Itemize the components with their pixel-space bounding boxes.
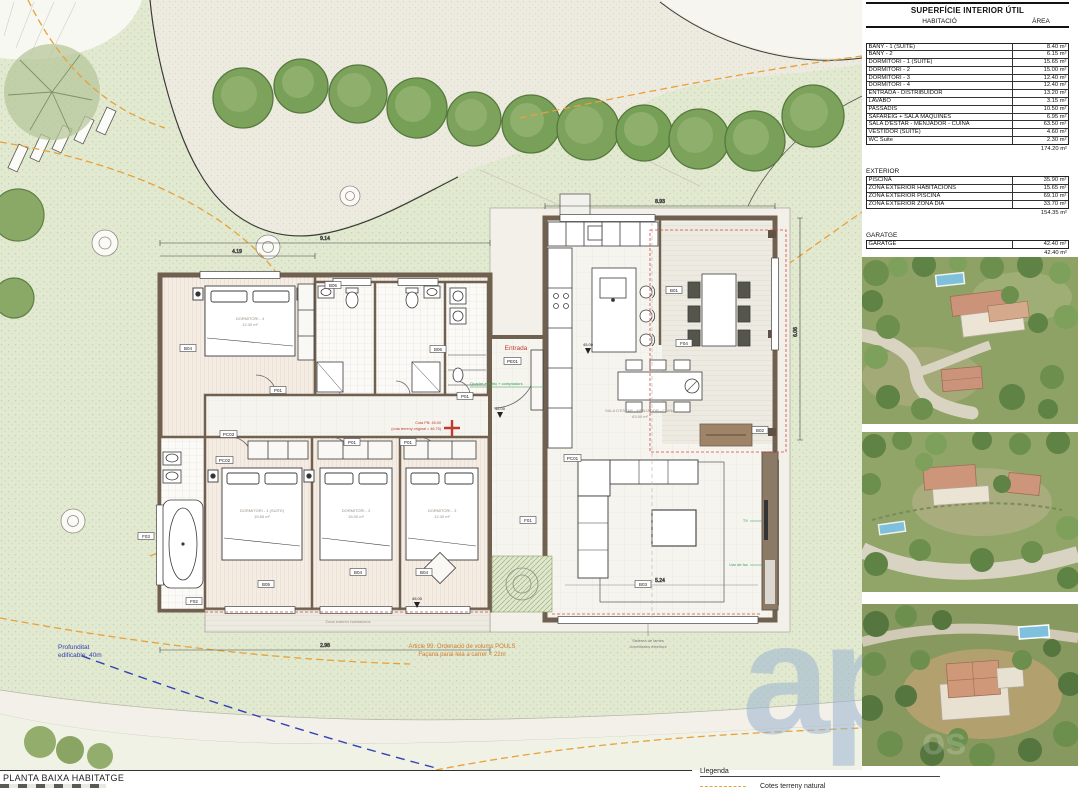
svg-text:corredisses exteriors: corredisses exteriors — [630, 644, 667, 649]
table-row: BANY - 1 (SUITE)8.40 m² — [867, 44, 1068, 52]
coffee-table — [652, 510, 696, 546]
table-row: PISCINA35.90 m² — [867, 177, 1068, 185]
table-row: WC Suite2.30 m² — [867, 137, 1068, 144]
svg-text:edificable, 40m: edificable, 40m — [58, 652, 102, 659]
table-row: ENTRADA - DISTRIBUÏDOR13.20 m² — [867, 90, 1068, 98]
svg-text:Article 99. Ordenació de volum: Article 99. Ordenació de volums POULS — [408, 644, 515, 650]
aerial-render-2 — [862, 432, 1078, 592]
skylight — [560, 194, 590, 216]
table-row: VESTIDOR (SUITE)4.60 m² — [867, 129, 1068, 137]
svg-text:63.50 m²: 63.50 m² — [632, 414, 648, 419]
svg-text:PC01: PC01 — [567, 456, 579, 461]
depth-note: Profunditat — [58, 644, 90, 651]
column-header-room: HABITACIÓ — [866, 18, 1013, 25]
section-title: GARATGE — [866, 232, 1069, 239]
svg-text:PE01: PE01 — [507, 359, 519, 364]
svg-text:Quadre elèctric + comptadors: Quadre elèctric + comptadors — [470, 381, 523, 386]
svg-text:B03: B03 — [639, 582, 648, 587]
svg-text:DORMITORI - 2: DORMITORI - 2 — [342, 508, 371, 513]
garage-building — [1007, 472, 1041, 495]
table-row: ZONA EXTERIOR PISCINA69.10 m² — [867, 193, 1068, 201]
entrance-label: Entrada — [505, 345, 528, 352]
title-block-divider — [0, 770, 692, 771]
svg-text:45.00: 45.00 — [583, 342, 594, 347]
area-table-interior: SUPERFÍCIE INTERIOR ÚTIL HABITACIÓ ÀREA … — [866, 2, 1069, 152]
svg-text:B01: B01 — [670, 288, 679, 293]
interior-rows: BANY - 1 (SUITE)8.40 m²BANY - 26.15 m²DO… — [866, 43, 1069, 145]
scale-bar — [0, 784, 106, 788]
table-row: LAVABO3.15 m² — [867, 98, 1068, 106]
legend-item: Cotes terreny natural — [700, 783, 1000, 790]
svg-text:(cota terreny original = 46.75: (cota terreny original = 46.75) — [391, 427, 441, 431]
tv — [764, 500, 768, 540]
dining-table — [618, 360, 702, 412]
svg-text:Zona exterior habitacions: Zona exterior habitacions — [326, 619, 371, 624]
svg-text:SALA D'ESTAR - MENJADOR - CUIN: SALA D'ESTAR - MENJADOR - CUINA — [605, 408, 675, 413]
svg-text:B04: B04 — [354, 570, 363, 575]
divider — [866, 26, 1069, 28]
table-row: DORMITORI - 312.40 m² — [867, 75, 1068, 83]
site-plan: Profunditat edificable, 40m — [0, 0, 862, 770]
svg-text:P01: P01 — [348, 440, 357, 445]
svg-text:B06: B06 — [329, 283, 338, 288]
svg-text:4.19: 4.19 — [232, 249, 242, 255]
svg-text:5.24: 5.24 — [655, 578, 665, 584]
svg-text:PC02: PC02 — [219, 458, 231, 463]
svg-text:45.00: 45.00 — [412, 596, 423, 601]
svg-text:B06: B06 — [434, 347, 443, 352]
svg-text:F02: F02 — [190, 599, 198, 604]
divider — [866, 2, 1069, 4]
svg-text:F01: F01 — [524, 518, 532, 523]
svg-text:P01: P01 — [461, 394, 470, 399]
svg-text:B02: B02 — [756, 428, 765, 433]
pool — [936, 273, 965, 287]
table-row: SAFAREIG + SALA MÀQUINES6.95 m² — [867, 114, 1068, 122]
aerial-render-3: os — [862, 604, 1078, 766]
garage-total: 42.40 m² — [866, 250, 1069, 256]
svg-text:TV: TV — [743, 518, 748, 523]
svg-text:9.14: 9.14 — [320, 236, 330, 242]
table-row: DORMITORI - 1 (SUITE)15.65 m² — [867, 59, 1068, 67]
svg-text:DORMITORI - 3: DORMITORI - 3 — [428, 508, 457, 513]
svg-text:8.93: 8.93 — [655, 199, 665, 205]
svg-text:F03: F03 — [142, 534, 150, 539]
table-row: BANY - 26.15 m² — [867, 51, 1068, 59]
svg-text:45.00: 45.00 — [495, 406, 506, 411]
exterior-rows: PISCINA35.90 m²ZONA EXTERIOR HABITACIONS… — [866, 176, 1069, 208]
svg-text:Llar de foc: Llar de foc — [729, 562, 748, 567]
house-plan — [157, 215, 787, 633]
svg-text:DORMITORI - 1 (SUITE): DORMITORI - 1 (SUITE) — [240, 508, 285, 513]
garage-building — [941, 366, 983, 391]
svg-text:12.40 m²: 12.40 m² — [434, 514, 450, 519]
drawing-sheet: Profunditat edificable, 40m — [0, 0, 1080, 793]
svg-text:Sistema de lames: Sistema de lames — [632, 638, 664, 643]
svg-text:P01: P01 — [404, 440, 413, 445]
pool — [1019, 625, 1050, 639]
svg-text:15.65 m²: 15.65 m² — [254, 514, 270, 519]
table-row: DORMITORI - 215.00 m² — [867, 67, 1068, 75]
watermark-fragment: os — [922, 721, 966, 763]
divider — [700, 776, 940, 777]
svg-text:15.00 m²: 15.00 m² — [348, 514, 364, 519]
legend-item-label: Cotes terreny natural — [760, 783, 825, 790]
area-table-garage: GARATGE GARATGE42.40 m² 42.40 m² — [866, 232, 1069, 256]
interior-total: 174.20 m² — [866, 146, 1069, 152]
legend-title: Llegenda — [700, 768, 1000, 775]
table-row: GARATGE42.40 m² — [867, 241, 1068, 248]
garage-rows: GARATGE42.40 m² — [866, 240, 1069, 249]
svg-text:B04: B04 — [184, 346, 193, 351]
area-tables: SUPERFÍCIE INTERIOR ÚTIL HABITACIÓ ÀREA … — [866, 0, 1069, 256]
aerial-render-1 — [862, 257, 1078, 424]
table-row: ZONA EXTERIOR ZONA DIA33.70 m² — [867, 201, 1068, 208]
area-table-exterior: EXTERIOR PISCINA35.90 m²ZONA EXTERIOR HA… — [866, 168, 1069, 216]
svg-text:Cota PB: 45.00: Cota PB: 45.00 — [415, 421, 441, 425]
column-header-area: ÀREA — [1013, 18, 1069, 25]
contour-line-swatch — [700, 786, 746, 787]
table-row: SALA D'ESTAR - MENJADOR - CUINA63.50 m² — [867, 121, 1068, 129]
exterior-total: 154.35 m² — [866, 210, 1069, 216]
svg-text:B05: B05 — [262, 582, 271, 587]
legend: Llegenda Cotes terreny natural — [700, 768, 1000, 790]
table-row: ZONA EXTERIOR HABITACIONS15.65 m² — [867, 185, 1068, 193]
svg-text:F04: F04 — [680, 341, 688, 346]
table-row: PASSADIS10.50 m² — [867, 106, 1068, 114]
section-title: EXTERIOR — [866, 168, 1069, 175]
svg-text:DORMITORI - 4: DORMITORI - 4 — [236, 316, 265, 321]
svg-text:6.06: 6.06 — [793, 327, 799, 337]
svg-text:2.98: 2.98 — [320, 643, 330, 649]
svg-text:PC03: PC03 — [223, 432, 235, 437]
svg-text:Façana paral·lela a carrer < 2: Façana paral·lela a carrer < 22m — [418, 652, 505, 658]
svg-text:12.40 m²: 12.40 m² — [242, 322, 258, 327]
bed — [193, 286, 307, 356]
svg-text:P01: P01 — [274, 388, 283, 393]
table-header: HABITACIÓ ÀREA — [866, 18, 1069, 25]
table-row: DORMITORI - 412.40 m² — [867, 82, 1068, 90]
table-title: SUPERFÍCIE INTERIOR ÚTIL — [866, 6, 1069, 15]
drawing-title: PLANTA BAIXA HABITATGE — [3, 773, 124, 783]
svg-text:B04: B04 — [420, 570, 429, 575]
